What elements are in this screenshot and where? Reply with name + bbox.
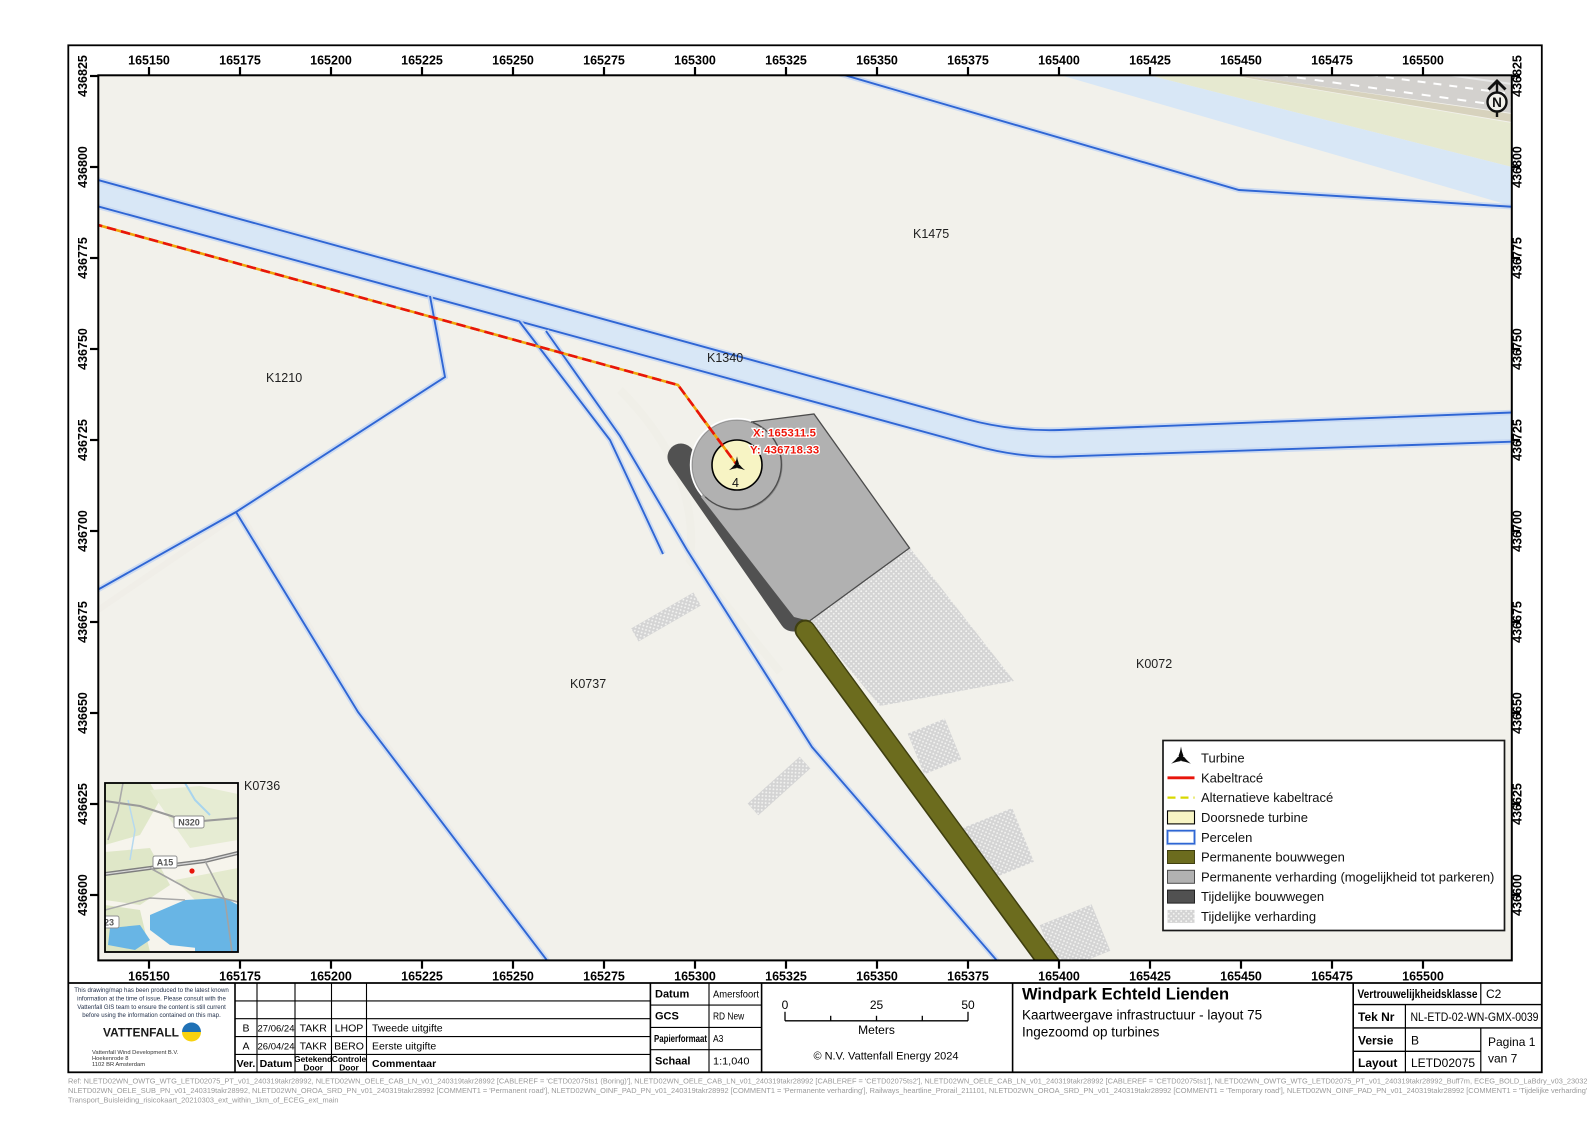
svg-text:165275: 165275: [583, 970, 625, 984]
svg-text:25: 25: [870, 998, 884, 1012]
svg-text:Schaal: Schaal: [655, 1055, 690, 1067]
svg-text:BERO: BERO: [334, 1040, 364, 1052]
svg-text:436750: 436750: [1511, 328, 1525, 370]
svg-text:K1340: K1340: [707, 351, 743, 365]
svg-text:A3: A3: [713, 1034, 724, 1045]
svg-text:This drawing/map has been prod: This drawing/map has been produced to th…: [74, 987, 228, 994]
svg-text:436700: 436700: [76, 510, 90, 552]
svg-text:LETD02075: LETD02075: [1411, 1056, 1475, 1070]
svg-text:Tweede uitgifte: Tweede uitgifte: [372, 1023, 443, 1035]
svg-text:K0737: K0737: [570, 677, 606, 691]
svg-text:Permanente bouwwegen: Permanente bouwwegen: [1201, 850, 1345, 865]
svg-text:436625: 436625: [1511, 783, 1525, 825]
svg-text:165300: 165300: [674, 970, 716, 984]
svg-text:Tijdelijke bouwwegen: Tijdelijke bouwwegen: [1201, 889, 1324, 904]
svg-text:Eerste uitgifte: Eerste uitgifte: [372, 1040, 436, 1052]
svg-text:165225: 165225: [401, 970, 443, 984]
svg-text:165350: 165350: [856, 970, 898, 984]
svg-text:436825: 436825: [1511, 55, 1525, 97]
svg-text:165250: 165250: [492, 970, 534, 984]
svg-text:0: 0: [782, 998, 789, 1012]
svg-text:Vattenfall GIS team to ensure: Vattenfall GIS team to ensure the conten…: [77, 1004, 226, 1011]
svg-text:165250: 165250: [492, 54, 534, 68]
svg-text:LHOP: LHOP: [335, 1023, 364, 1035]
svg-text:Meters: Meters: [858, 1023, 895, 1037]
svg-text:436750: 436750: [76, 328, 90, 370]
svg-text:436675: 436675: [76, 601, 90, 643]
svg-text:165325: 165325: [765, 970, 807, 984]
svg-text:436800: 436800: [1511, 146, 1525, 188]
svg-text:165200: 165200: [310, 970, 352, 984]
svg-text:165375: 165375: [947, 970, 989, 984]
svg-text:Alternatieve kabeltracé: Alternatieve kabeltracé: [1201, 790, 1333, 805]
svg-text:Commentaar: Commentaar: [372, 1058, 436, 1070]
svg-text:Door: Door: [303, 1063, 323, 1073]
svg-text:165275: 165275: [583, 54, 625, 68]
svg-text:NL-ETD-02-WN-GMX-0039: NL-ETD-02-WN-GMX-0039: [1411, 1010, 1539, 1024]
svg-text:before using the information c: before using the information contained o…: [82, 1012, 221, 1019]
svg-text:165150: 165150: [128, 54, 170, 68]
svg-text:Percelen: Percelen: [1201, 830, 1252, 845]
svg-text:436725: 436725: [1511, 419, 1525, 461]
svg-text:1102 BR Amsterdam: 1102 BR Amsterdam: [92, 1062, 145, 1068]
svg-text:Datum: Datum: [655, 989, 689, 1001]
svg-text:165200: 165200: [310, 54, 352, 68]
svg-text:165175: 165175: [219, 970, 261, 984]
svg-text:4: 4: [732, 476, 739, 490]
svg-text:436625: 436625: [76, 783, 90, 825]
svg-text:165425: 165425: [1129, 54, 1171, 68]
svg-text:Turbine: Turbine: [1201, 751, 1245, 766]
svg-text:165300: 165300: [674, 54, 716, 68]
svg-text:A15: A15: [157, 858, 174, 868]
svg-text:X: 165311.5: X: 165311.5: [753, 428, 816, 440]
svg-text:165500: 165500: [1402, 54, 1444, 68]
svg-text:165475: 165475: [1311, 54, 1353, 68]
svg-text:436725: 436725: [76, 419, 90, 461]
svg-text:165350: 165350: [856, 54, 898, 68]
svg-text:436825: 436825: [76, 55, 90, 97]
svg-text:165425: 165425: [1129, 970, 1171, 984]
svg-text:Transport_Buisleiding_risicoka: Transport_Buisleiding_risicokaart_202103…: [68, 1096, 338, 1105]
svg-text:165400: 165400: [1038, 970, 1080, 984]
svg-text:TAKR: TAKR: [300, 1023, 328, 1035]
svg-text:K0072: K0072: [1136, 657, 1172, 671]
svg-text:van 7: van 7: [1488, 1052, 1518, 1066]
svg-text:TAKR: TAKR: [300, 1040, 328, 1052]
svg-text:27/06/24: 27/06/24: [258, 1024, 295, 1035]
svg-text:N320: N320: [178, 818, 200, 828]
svg-text:436800: 436800: [76, 146, 90, 188]
svg-text:Versie: Versie: [1358, 1034, 1394, 1048]
svg-text:165375: 165375: [947, 54, 989, 68]
svg-text:165475: 165475: [1311, 970, 1353, 984]
svg-text:Permanente verharding (mogelij: Permanente verharding (mogelijkheid tot …: [1201, 869, 1494, 884]
svg-text:165450: 165450: [1220, 54, 1262, 68]
svg-text:1:1,040: 1:1,040: [713, 1056, 750, 1067]
svg-text:K0736: K0736: [244, 779, 280, 793]
svg-text:NLETD02WN_OELE_SUB_PN_v01_2403: NLETD02WN_OELE_SUB_PN_v01_240319takr2899…: [68, 1086, 1587, 1095]
svg-text:VATTENFALL: VATTENFALL: [103, 1026, 179, 1040]
svg-text:information at the time of iss: information at the time of issue. Please…: [77, 995, 226, 1002]
svg-text:GCS: GCS: [655, 1011, 679, 1023]
svg-text:B: B: [242, 1023, 249, 1035]
svg-text:Layout: Layout: [1358, 1056, 1397, 1070]
svg-text:26/04/24: 26/04/24: [258, 1041, 295, 1052]
svg-text:Ref: NLETD02WN_OWTG_WTG_LETD02: Ref: NLETD02WN_OWTG_WTG_LETD02075_PT_v01…: [68, 1077, 1587, 1086]
svg-text:436650: 436650: [76, 692, 90, 734]
svg-text:165500: 165500: [1402, 970, 1444, 984]
svg-text:165225: 165225: [401, 54, 443, 68]
svg-text:Datum: Datum: [260, 1058, 293, 1070]
svg-text:165450: 165450: [1220, 970, 1262, 984]
svg-text:165325: 165325: [765, 54, 807, 68]
svg-text:436775: 436775: [1511, 237, 1525, 279]
svg-text:Tek Nr: Tek Nr: [1358, 1010, 1395, 1024]
svg-text:Ingezoomd op turbines: Ingezoomd op turbines: [1022, 1025, 1160, 1040]
svg-text:436600: 436600: [1511, 874, 1525, 916]
svg-text:© N.V. Vattenfall Energy 2024: © N.V. Vattenfall Energy 2024: [813, 1051, 958, 1063]
svg-text:RD New: RD New: [713, 1012, 745, 1023]
svg-text:165150: 165150: [128, 970, 170, 984]
svg-text:436675: 436675: [1511, 601, 1525, 643]
svg-text:Windpark Echteld Lienden: Windpark Echteld Lienden: [1022, 986, 1229, 1004]
svg-text:436700: 436700: [1511, 510, 1525, 552]
svg-text:B: B: [1411, 1034, 1419, 1048]
svg-text:Y: 436718.33: Y: 436718.33: [750, 445, 819, 457]
svg-text:Pagina 1: Pagina 1: [1488, 1035, 1536, 1049]
svg-text:50: 50: [961, 998, 975, 1012]
svg-text:Doorsnede turbine: Doorsnede turbine: [1201, 810, 1308, 825]
svg-text:A: A: [242, 1040, 249, 1052]
svg-text:165400: 165400: [1038, 54, 1080, 68]
svg-text:Tijdelijke verharding: Tijdelijke verharding: [1201, 909, 1316, 924]
svg-text:Papierformaat: Papierformaat: [654, 1033, 707, 1045]
svg-text:Ver.: Ver.: [237, 1058, 256, 1070]
svg-text:165175: 165175: [219, 54, 261, 68]
svg-text:Door: Door: [339, 1063, 359, 1073]
svg-text:436650: 436650: [1511, 692, 1525, 734]
svg-text:Vertrouwelijkheidsklasse: Vertrouwelijkheidsklasse: [1358, 987, 1478, 1001]
svg-text:Amersfoort: Amersfoort: [713, 990, 759, 1001]
svg-text:C2: C2: [1486, 987, 1502, 1001]
svg-text:Kaartweergave infrastructuur -: Kaartweergave infrastructuur - layout 75: [1022, 1008, 1262, 1023]
svg-text:K1210: K1210: [266, 371, 302, 385]
svg-text:N: N: [1492, 95, 1502, 110]
svg-text:436600: 436600: [76, 874, 90, 916]
svg-text:Kabeltracé: Kabeltracé: [1201, 770, 1263, 785]
svg-text:436775: 436775: [76, 237, 90, 279]
svg-text:K1475: K1475: [913, 227, 949, 241]
